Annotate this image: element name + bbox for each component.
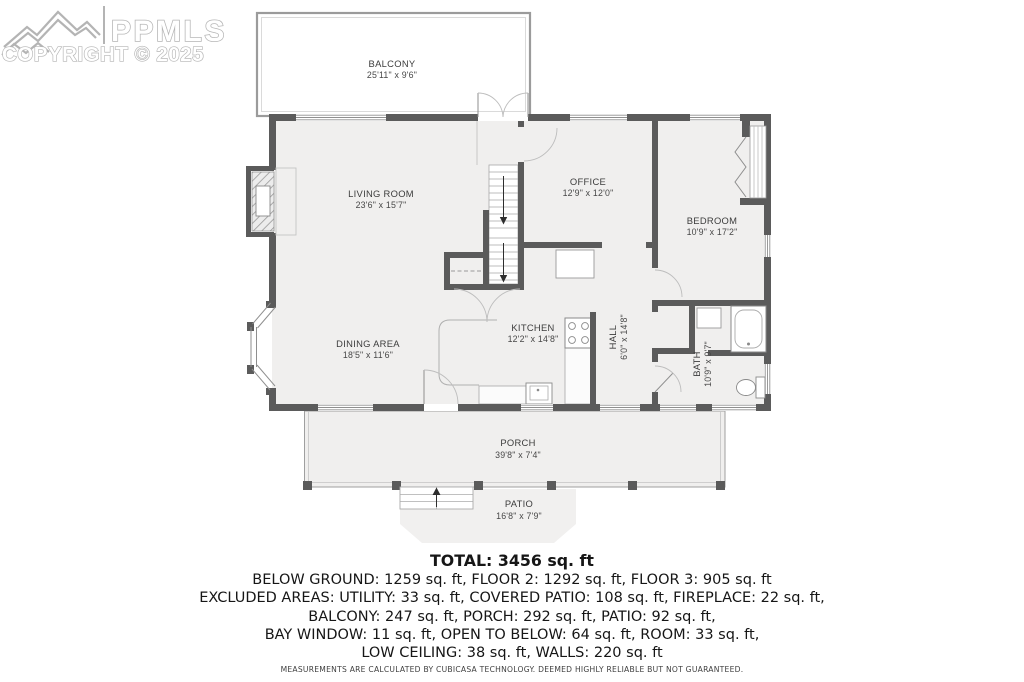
vanity — [697, 308, 721, 328]
summary-block: TOTAL: 3456 sq. ft BELOW GROUND: 1259 sq… — [0, 551, 1024, 674]
porch-dims: 39'8" x 7'4" — [495, 450, 541, 460]
entry-steps — [400, 487, 473, 509]
office-dims: 12'9" x 12'0" — [563, 188, 614, 198]
floorplan-image: PPMLS COPYRIGHT © 2025 — [0, 0, 1024, 550]
living-room-dims: 23'6" x 15'7" — [356, 200, 407, 210]
porch-label: PORCH — [500, 437, 535, 448]
dining-area-label: DINING AREA — [336, 338, 400, 349]
summary-line: LOW CEILING: 38 sq. ft, WALLS: 220 sq. f… — [0, 644, 1024, 662]
kitchen-dims: 12'2" x 14'8" — [508, 334, 559, 344]
patio-label: PATIO — [505, 498, 533, 509]
dishwasher — [479, 386, 526, 404]
bedroom-dims: 10'9" x 17'2" — [687, 227, 738, 237]
bedroom-label: BEDROOM — [687, 215, 738, 226]
summary-line: BAY WINDOW: 11 sq. ft, OPEN TO BELOW: 64… — [0, 626, 1024, 644]
balcony-label: BALCONY — [369, 58, 416, 69]
patio-dims: 16'8" x 7'9" — [496, 511, 542, 521]
disclaimer: MEASUREMENTS ARE CALCULATED BY CUBICASA … — [0, 665, 1024, 674]
kitchen-label: KITCHEN — [511, 322, 554, 333]
kitchen-counter — [565, 348, 591, 404]
sink — [526, 383, 552, 404]
summary-line: EXCLUDED AREAS: UTILITY: 33 sq. ft, COVE… — [0, 589, 1024, 607]
living-room-label: LIVING ROOM — [348, 188, 414, 199]
office-label: OFFICE — [570, 176, 606, 187]
hall-dims: 6'0" x 14'8" — [619, 314, 629, 360]
watermark-copyright: COPYRIGHT © 2025 — [2, 43, 204, 66]
hall-label: HALL — [607, 325, 618, 350]
summary-line: BELOW GROUND: 1259 sq. ft, FLOOR 2: 1292… — [0, 571, 1024, 589]
bath-dims: 10'9" x 9'7" — [703, 341, 713, 387]
bay-window — [251, 303, 276, 390]
bathtub — [731, 306, 766, 352]
porch-area — [305, 411, 725, 487]
balcony-dims: 25'11" x 9'6" — [367, 70, 417, 80]
dining-area-dims: 18'5" x 11'6" — [343, 350, 393, 360]
summary-line: BALCONY: 247 sq. ft, PORCH: 292 sq. ft, … — [0, 608, 1024, 626]
fridge — [556, 250, 594, 278]
bath-label: BATH — [691, 351, 702, 377]
stove — [565, 318, 591, 348]
total-sqft: TOTAL: 3456 sq. ft — [0, 551, 1024, 571]
ppmls-logo: PPMLS COPYRIGHT © 2025 — [2, 6, 227, 66]
